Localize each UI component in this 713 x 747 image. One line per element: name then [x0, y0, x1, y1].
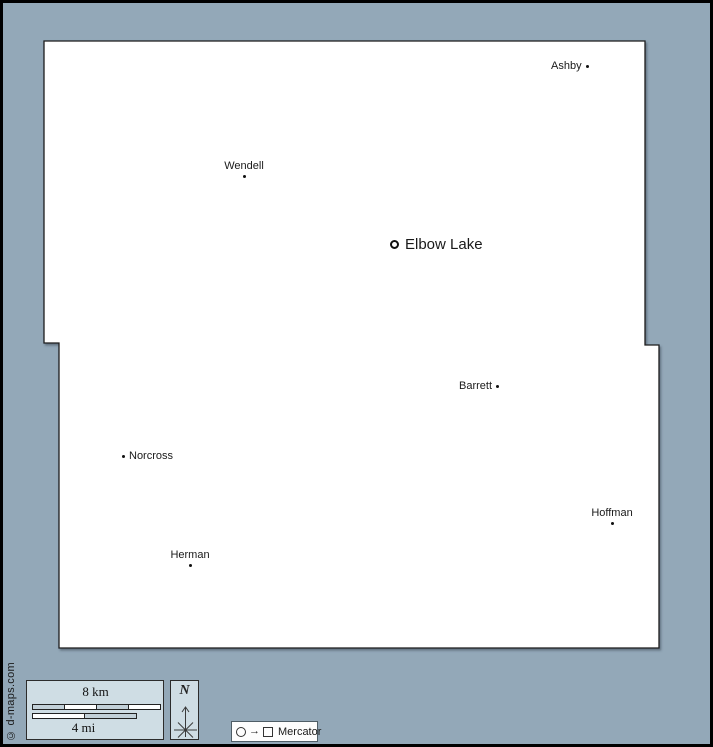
town-norcross-label: Norcross [129, 451, 173, 462]
scale-km-label: 8 km [32, 684, 159, 700]
town-barrett-label: Barrett [459, 381, 492, 392]
scale-km-segment [96, 705, 128, 709]
town-hoffman-label: Hoffman [591, 508, 632, 519]
town-ashby-dot-icon [586, 65, 589, 68]
town-ashby-label: Ashby [551, 61, 582, 72]
scale-km-segment [64, 705, 96, 709]
scale-km-segment [33, 705, 64, 709]
town-elbow-lake: Elbow Lake [390, 237, 483, 252]
projection-square-icon [263, 727, 273, 737]
town-wendell-label: Wendell [224, 161, 264, 172]
town-barrett: Barrett [459, 381, 499, 392]
town-wendell: Wendell [214, 161, 274, 178]
town-elbow-lake-ring-icon [390, 240, 399, 249]
map-canvas: Ashby Wendell Elbow Lake Barrett Norcros… [0, 0, 713, 747]
town-ashby: Ashby [551, 61, 589, 72]
scale-mi-segment [33, 714, 84, 718]
compass-north-label: N [171, 683, 198, 699]
county-polygon [44, 41, 659, 648]
scale-km-bar [32, 704, 161, 710]
town-hoffman: Hoffman [582, 508, 642, 525]
scale-mi-segment [84, 714, 136, 718]
county-shape [3, 3, 713, 747]
credit-text: © d-maps.com [5, 662, 17, 741]
projection-circle-icon [236, 727, 246, 737]
scale-bar-panel: 8 km 4 mi [26, 680, 164, 740]
scale-mi-label: 4 mi [32, 720, 135, 736]
town-herman-label: Herman [170, 550, 209, 561]
town-norcross: Norcross [122, 451, 173, 462]
town-herman-dot-icon [189, 564, 192, 567]
town-herman: Herman [160, 550, 220, 567]
scale-mi-bar [32, 713, 137, 719]
town-norcross-dot-icon [122, 455, 125, 458]
town-elbow-lake-label: Elbow Lake [405, 237, 483, 252]
projection-arrow-icon: → [249, 726, 260, 737]
town-wendell-dot-icon [243, 175, 246, 178]
town-hoffman-dot-icon [611, 522, 614, 525]
projection-box: → Mercator [231, 721, 318, 742]
scale-km-segment [128, 705, 160, 709]
projection-label: Mercator [276, 726, 321, 738]
compass-panel: N [170, 680, 199, 740]
town-barrett-dot-icon [496, 385, 499, 388]
compass-arrow-icon [171, 703, 200, 741]
